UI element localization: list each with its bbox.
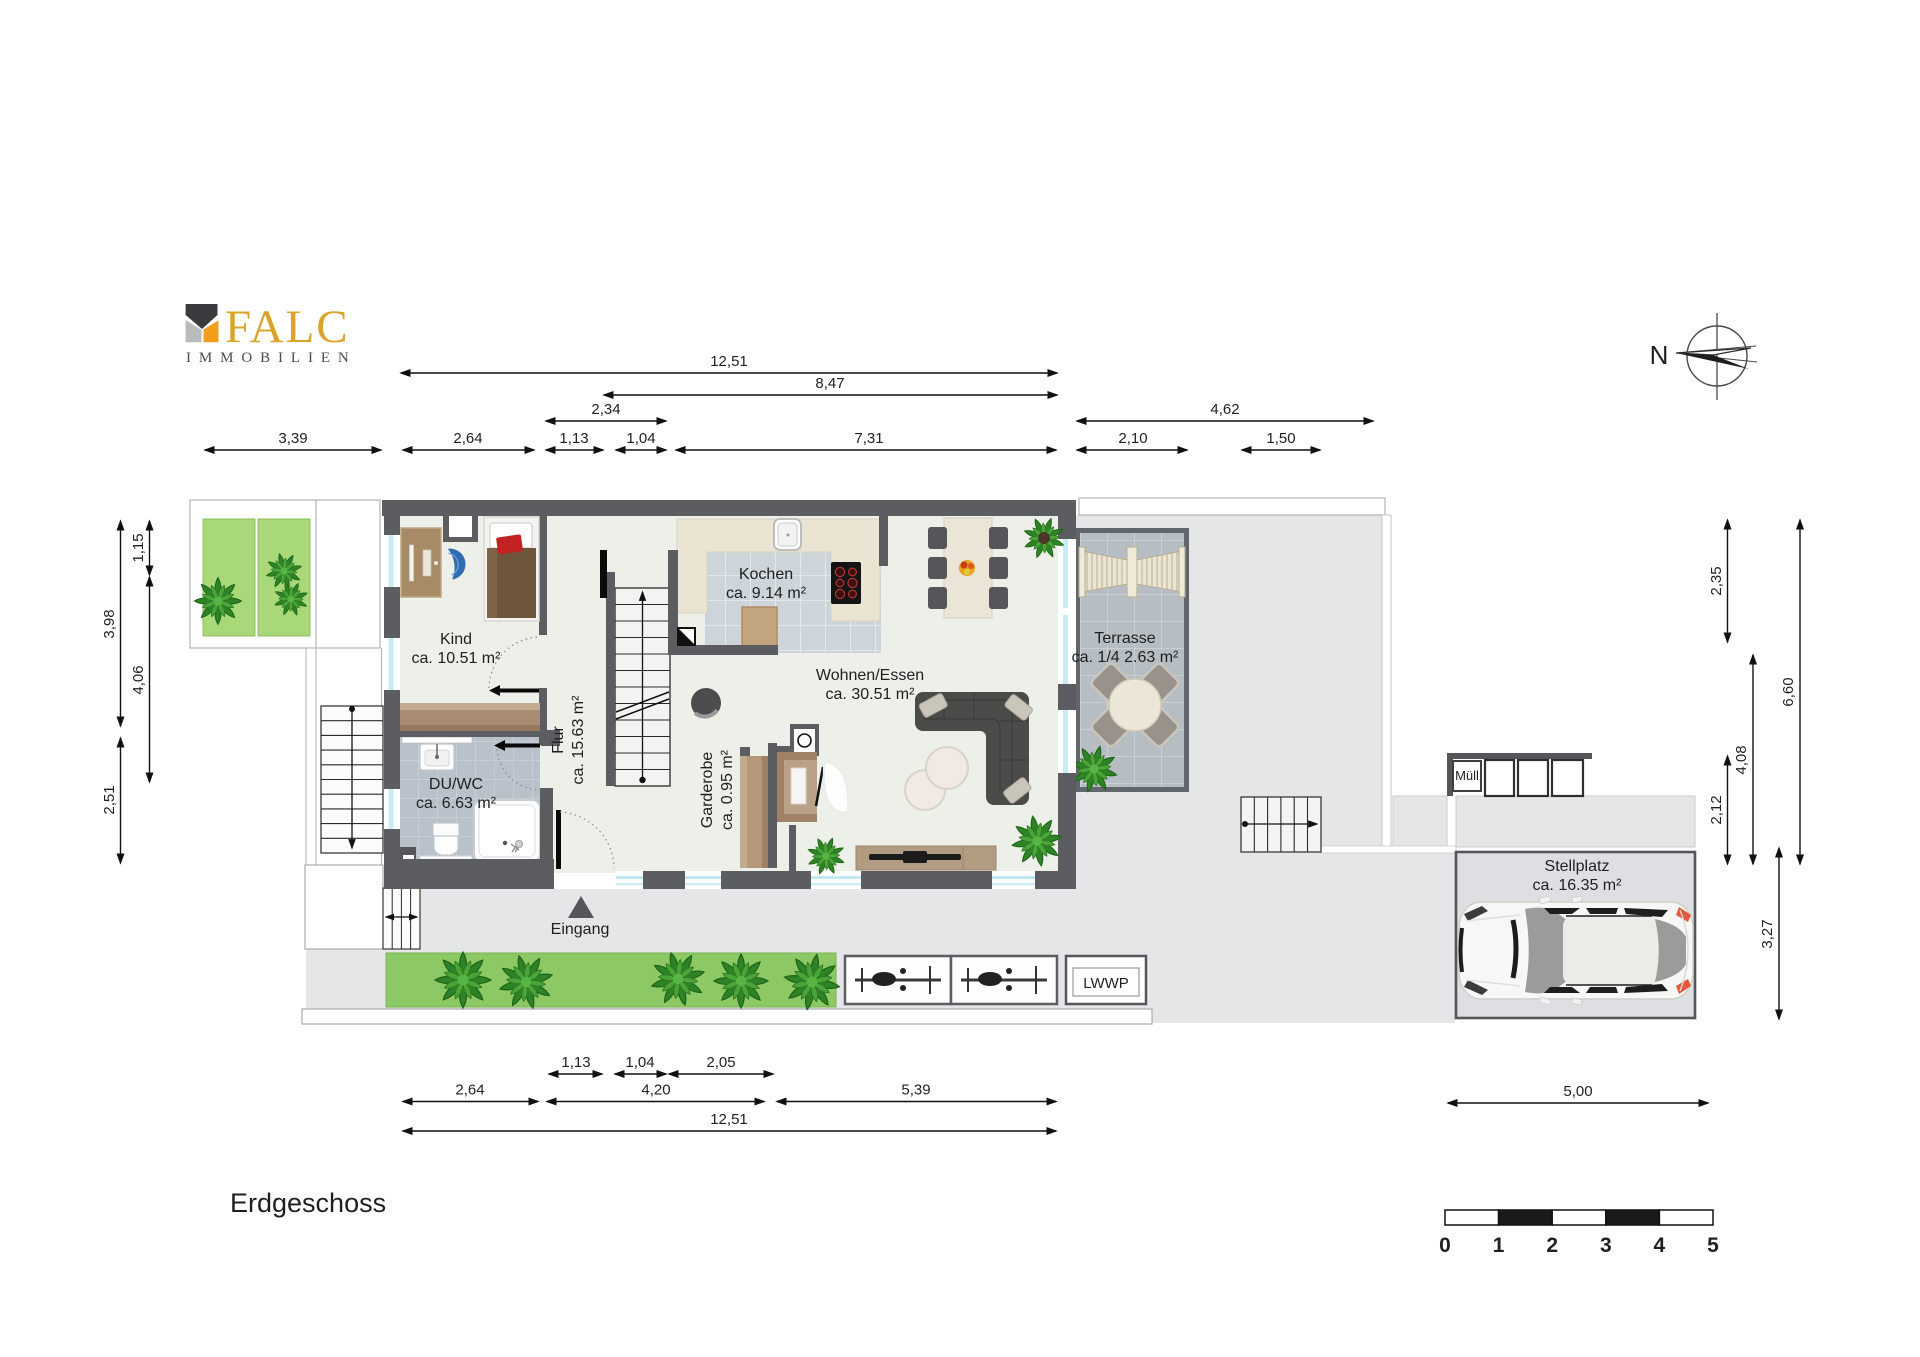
svg-text:12,51: 12,51 <box>710 1111 748 1128</box>
svg-text:2,34: 2,34 <box>591 401 620 418</box>
svg-text:ca. 1/4 2.63 m²: ca. 1/4 2.63 m² <box>1072 649 1179 666</box>
svg-text:1: 1 <box>1493 1234 1505 1257</box>
svg-text:3,98: 3,98 <box>101 609 118 638</box>
svg-text:Stellplatz: Stellplatz <box>1545 858 1610 875</box>
svg-text:3,27: 3,27 <box>1759 919 1776 948</box>
svg-text:1,15: 1,15 <box>130 533 147 562</box>
svg-text:ca. 30.51 m²: ca. 30.51 m² <box>826 686 916 703</box>
svg-text:4,08: 4,08 <box>1733 745 1750 774</box>
svg-text:LWWP: LWWP <box>1083 975 1129 992</box>
svg-text:2,05: 2,05 <box>706 1054 735 1071</box>
svg-text:N: N <box>1650 340 1669 370</box>
svg-text:12,51: 12,51 <box>710 353 748 370</box>
svg-text:7,31: 7,31 <box>854 430 883 447</box>
svg-text:Kochen: Kochen <box>739 566 793 583</box>
svg-text:Flur: Flur <box>550 726 567 754</box>
svg-text:1,13: 1,13 <box>561 1054 590 1071</box>
svg-text:FALC: FALC <box>225 301 350 353</box>
svg-text:2,10: 2,10 <box>1118 430 1147 447</box>
svg-text:8,47: 8,47 <box>815 375 844 392</box>
svg-text:Eingang: Eingang <box>551 921 610 938</box>
svg-text:5,00: 5,00 <box>1563 1083 1592 1100</box>
svg-text:ca. 15.63 m²: ca. 15.63 m² <box>570 695 587 785</box>
svg-text:1,13: 1,13 <box>559 430 588 447</box>
svg-text:2,12: 2,12 <box>1708 795 1725 824</box>
svg-text:2,35: 2,35 <box>1708 566 1725 595</box>
svg-text:2,51: 2,51 <box>101 785 118 814</box>
svg-text:4,20: 4,20 <box>641 1082 670 1099</box>
svg-text:Müll: Müll <box>1455 768 1479 783</box>
svg-text:1,04: 1,04 <box>626 430 655 447</box>
svg-text:3,39: 3,39 <box>278 430 307 447</box>
svg-text:0: 0 <box>1439 1234 1451 1257</box>
svg-text:2,64: 2,64 <box>453 430 482 447</box>
svg-text:6,60: 6,60 <box>1780 677 1797 706</box>
svg-text:ca. 6.63 m²: ca. 6.63 m² <box>416 795 497 812</box>
svg-text:Garderobe: Garderobe <box>699 752 716 829</box>
svg-text:3: 3 <box>1600 1234 1612 1257</box>
svg-text:5,39: 5,39 <box>901 1082 930 1099</box>
svg-text:ca. 0.95 m²: ca. 0.95 m² <box>719 749 736 830</box>
svg-text:ca. 9.14 m²: ca. 9.14 m² <box>726 585 807 602</box>
svg-text:1,04: 1,04 <box>625 1054 654 1071</box>
svg-text:4,06: 4,06 <box>130 665 147 694</box>
svg-text:DU/WC: DU/WC <box>429 776 483 793</box>
svg-text:2,64: 2,64 <box>455 1082 484 1099</box>
svg-text:1,50: 1,50 <box>1266 430 1295 447</box>
svg-text:4,62: 4,62 <box>1210 401 1239 418</box>
svg-text:ca. 10.51 m²: ca. 10.51 m² <box>412 650 502 667</box>
svg-text:Kind: Kind <box>440 631 472 648</box>
svg-text:2: 2 <box>1546 1234 1558 1257</box>
svg-text:5: 5 <box>1707 1234 1719 1257</box>
svg-text:Terrasse: Terrasse <box>1094 630 1155 647</box>
svg-text:Erdgeschoss: Erdgeschoss <box>230 1188 386 1218</box>
svg-text:IMMOBILIEN: IMMOBILIEN <box>186 350 357 366</box>
svg-text:4: 4 <box>1654 1234 1666 1257</box>
svg-text:ca. 16.35 m²: ca. 16.35 m² <box>1533 877 1623 894</box>
svg-text:Wohnen/Essen: Wohnen/Essen <box>816 667 924 684</box>
